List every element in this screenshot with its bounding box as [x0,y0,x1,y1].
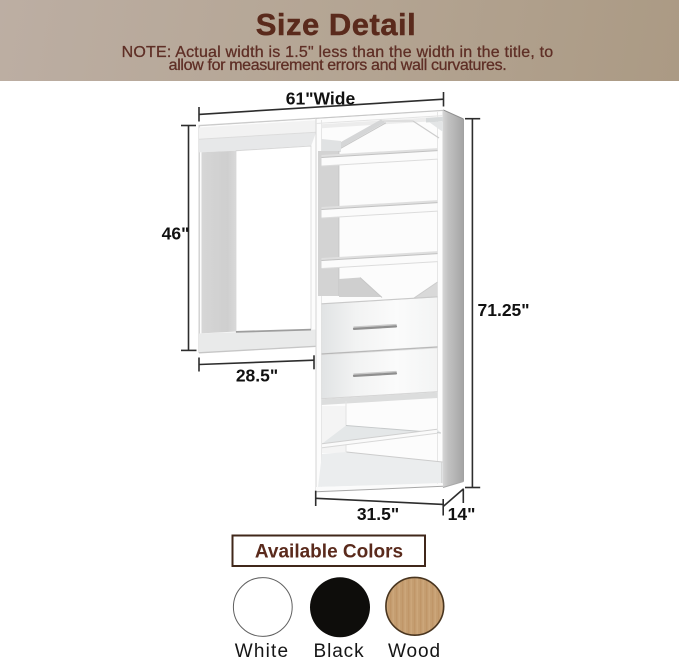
svg-text:Available Colors: Available Colors [255,542,403,563]
svg-text:White: White [235,641,290,661]
svg-text:71.25": 71.25" [478,300,530,320]
svg-text:61"Wide: 61"Wide [286,89,356,109]
svg-text:46": 46" [162,224,190,244]
svg-text:31.5": 31.5" [357,504,399,524]
svg-text:Black: Black [314,641,365,661]
svg-text:28.5": 28.5" [236,366,278,386]
svg-text:14": 14" [448,504,476,524]
svg-text:Wood: Wood [388,641,441,661]
